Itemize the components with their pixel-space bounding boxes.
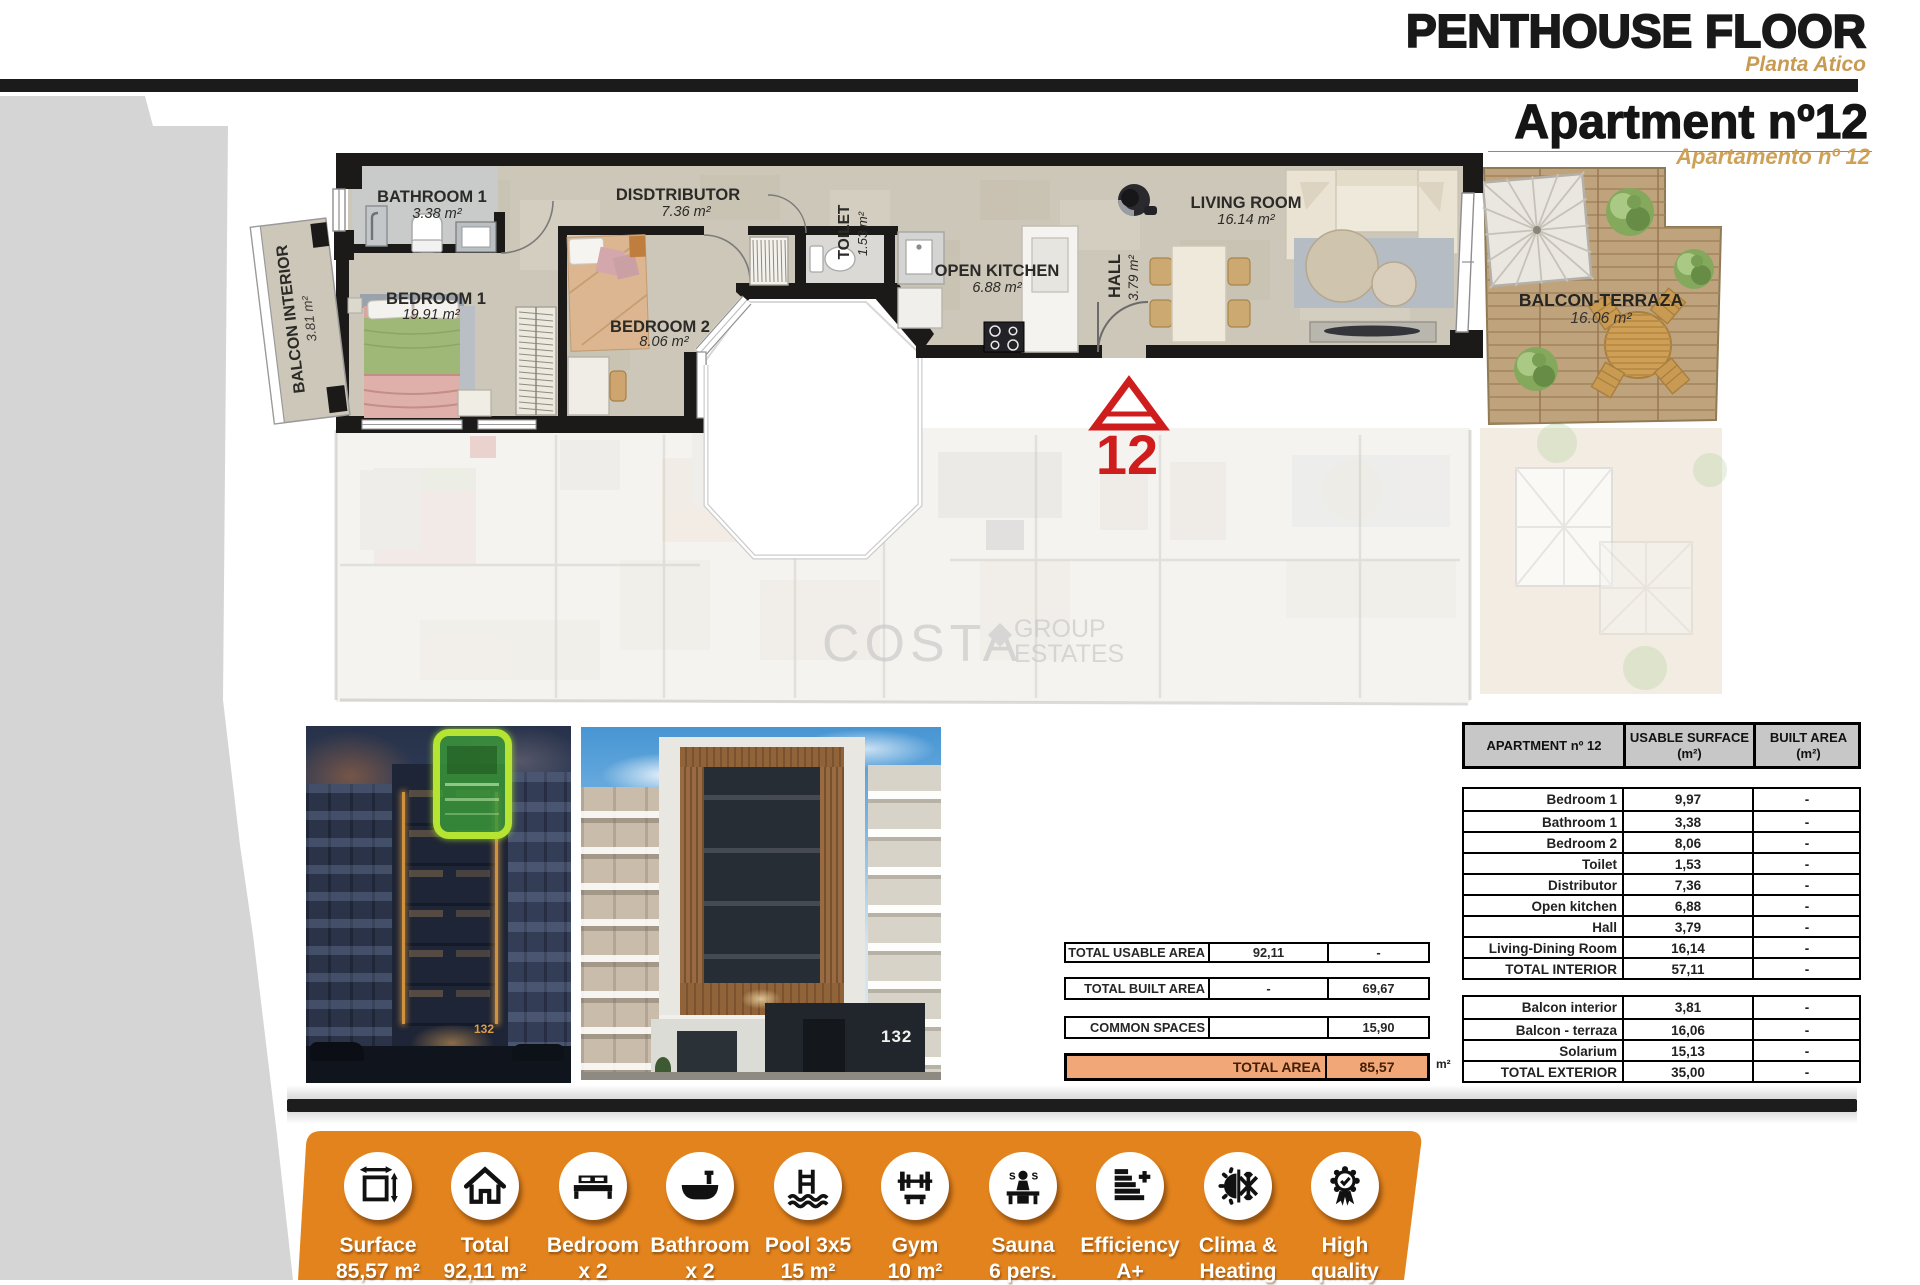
svg-text:s: s — [1031, 1168, 1038, 1182]
svg-text:s: s — [1009, 1168, 1016, 1182]
